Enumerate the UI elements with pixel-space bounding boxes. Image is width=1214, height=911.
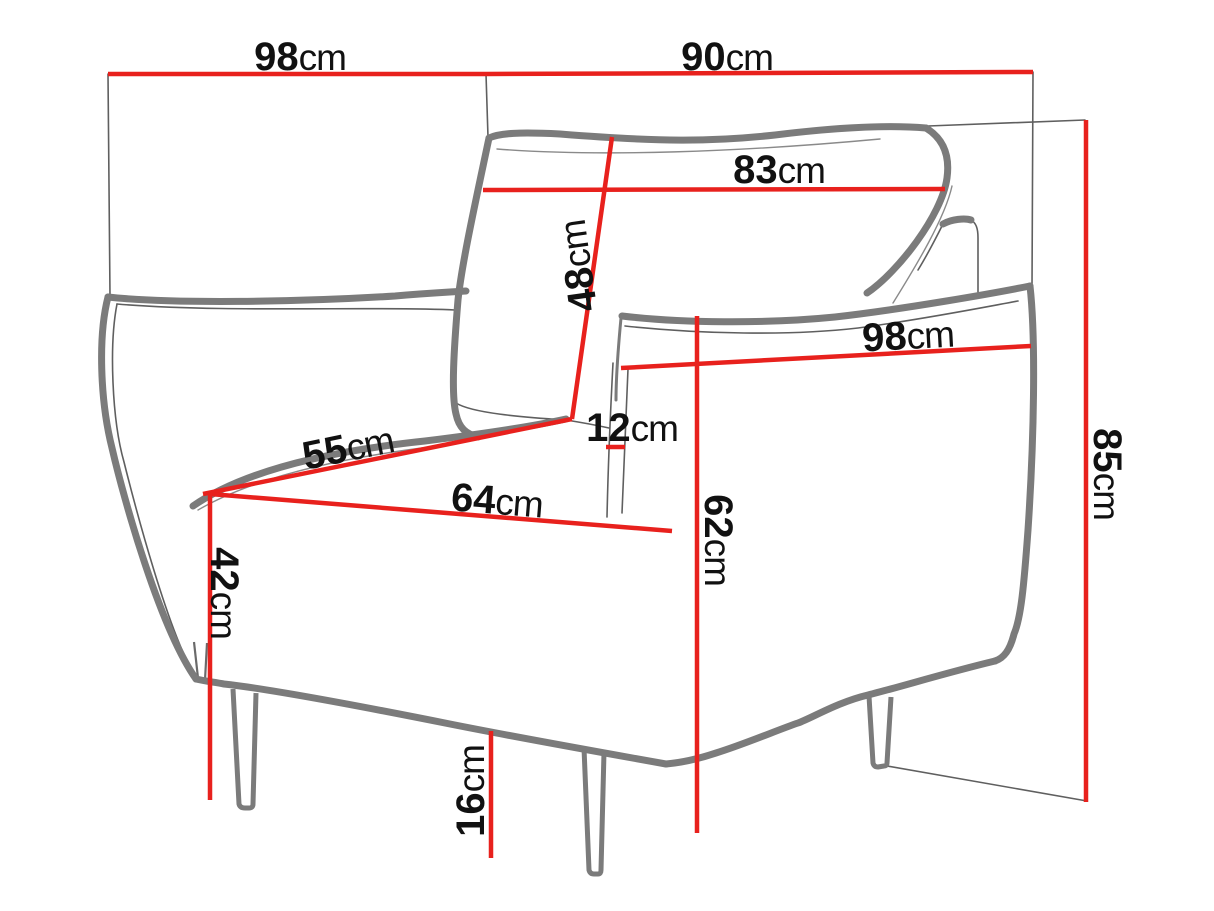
- armrest-front-edge: [616, 318, 621, 400]
- floor-line: [887, 766, 1087, 801]
- backrest-left-edge: [453, 138, 489, 437]
- headrest-top-edge: [489, 127, 926, 140]
- front-right-leg: [584, 748, 604, 874]
- dim-label-back-width: 98cm: [254, 35, 346, 79]
- dim-label-arm-length: 98cm: [861, 312, 955, 361]
- dim-label-arm-height: 62cm: [696, 494, 740, 586]
- dim-label-side-depth-top: 90cm: [681, 35, 773, 79]
- dim-label-seat-height: 42cm: [202, 547, 246, 639]
- armrest-top-edge: [622, 286, 1030, 322]
- dimension-diagram: 98cm 90cm 83cm 48cm 98cm 12cm 55cm 64cm …: [0, 0, 1214, 911]
- dim-line-seat-width: [210, 494, 672, 531]
- rear-right-leg: [869, 696, 891, 767]
- back-panel-top-edge: [108, 291, 466, 301]
- chair-bottom-right-edge: [666, 661, 995, 764]
- dim-label-backrest-width: 83cm: [733, 148, 825, 192]
- dim-label-total-height: 85cm: [1085, 428, 1129, 520]
- projection-line-top-height: [928, 120, 1085, 126]
- back-frame-right-edge: [971, 220, 978, 292]
- dim-line-arm-length: [621, 346, 1031, 368]
- dim-label-seat-side: 55cm: [299, 417, 398, 479]
- headrest-right-edge: [867, 128, 948, 293]
- chair-bottom-front-edge: [196, 679, 666, 764]
- front-left-leg: [233, 689, 256, 808]
- back-panel-left-edge: [102, 297, 196, 679]
- armchair-diagram-canvas: 98cm 90cm 83cm 48cm 98cm 12cm 55cm 64cm …: [0, 0, 1214, 911]
- projection-line-right: [1032, 72, 1033, 288]
- back-panel-top-seam: [117, 304, 455, 310]
- projection-line-middle: [486, 74, 488, 137]
- dim-label-leg-height: 16cm: [449, 745, 493, 837]
- chair-right-edge: [995, 286, 1034, 661]
- dim-line-backrest-width: [483, 189, 945, 190]
- dim-label-seat-width: 64cm: [449, 475, 544, 526]
- dim-label-back-gap: 12cm: [586, 406, 678, 450]
- back-frame-top-edge: [943, 219, 971, 224]
- projection-line-left: [108, 74, 110, 296]
- headrest-right-seam: [893, 186, 952, 303]
